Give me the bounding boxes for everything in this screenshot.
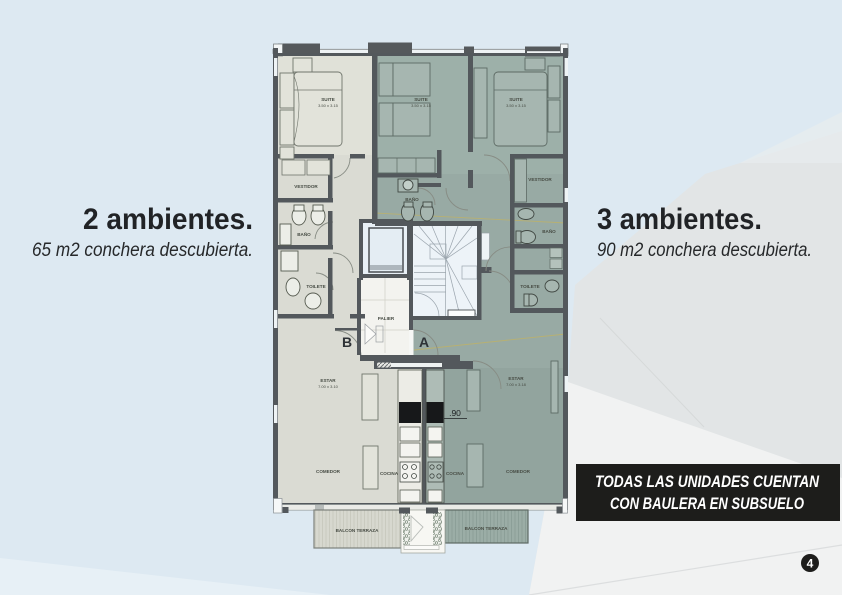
svg-text:A: A: [419, 334, 429, 350]
svg-text:90 m2 conchera descubierta.: 90 m2 conchera descubierta.: [597, 239, 812, 261]
svg-text:COCINA: COCINA: [446, 471, 465, 476]
svg-text:PALIER: PALIER: [378, 316, 395, 321]
svg-text:SUITE: SUITE: [321, 97, 335, 102]
svg-text:BAÑO: BAÑO: [405, 196, 419, 202]
svg-text:BALCON TERRAZA: BALCON TERRAZA: [465, 526, 509, 531]
svg-text:3.50 x 3.15: 3.50 x 3.15: [506, 103, 527, 108]
svg-text:B: B: [342, 334, 352, 350]
svg-text:TOILETE: TOILETE: [306, 284, 325, 289]
svg-text:COMEDOR: COMEDOR: [506, 469, 531, 474]
svg-text:ESTAR: ESTAR: [320, 378, 336, 383]
svg-text:BALCON TERRAZA: BALCON TERRAZA: [336, 528, 380, 533]
svg-text:3.50 x 3.15: 3.50 x 3.15: [411, 103, 432, 108]
svg-text:ESTAR: ESTAR: [508, 376, 524, 381]
svg-text:2 ambientes.: 2 ambientes.: [83, 203, 253, 236]
svg-text:SUITE: SUITE: [414, 97, 428, 102]
svg-text:CON BAULERA EN SUBSUELO: CON BAULERA EN SUBSUELO: [610, 495, 804, 513]
svg-text:TOILETE: TOILETE: [520, 284, 539, 289]
svg-text:4: 4: [807, 557, 814, 571]
svg-text:COCINA: COCINA: [380, 471, 399, 476]
svg-text:7.00 x 3.18: 7.00 x 3.18: [506, 382, 527, 387]
svg-text:65 m2 conchera descubierta.: 65 m2 conchera descubierta.: [32, 239, 253, 261]
svg-text:VESTIDOR: VESTIDOR: [294, 184, 318, 189]
svg-text:7.00 x 3.10: 7.00 x 3.10: [318, 384, 339, 389]
svg-text:VESTIDOR: VESTIDOR: [528, 177, 552, 182]
svg-text:SUITE: SUITE: [509, 97, 523, 102]
svg-text:.90: .90: [449, 408, 461, 418]
svg-text:3 ambientes.: 3 ambientes.: [597, 203, 762, 236]
svg-text:COMEDOR: COMEDOR: [316, 469, 341, 474]
svg-text:BAÑO: BAÑO: [542, 228, 556, 234]
svg-text:BAÑO: BAÑO: [297, 231, 311, 237]
svg-text:3.50 x 3.15: 3.50 x 3.15: [318, 103, 339, 108]
svg-text:TODAS LAS UNIDADES CUENTAN: TODAS LAS UNIDADES CUENTAN: [595, 473, 820, 491]
